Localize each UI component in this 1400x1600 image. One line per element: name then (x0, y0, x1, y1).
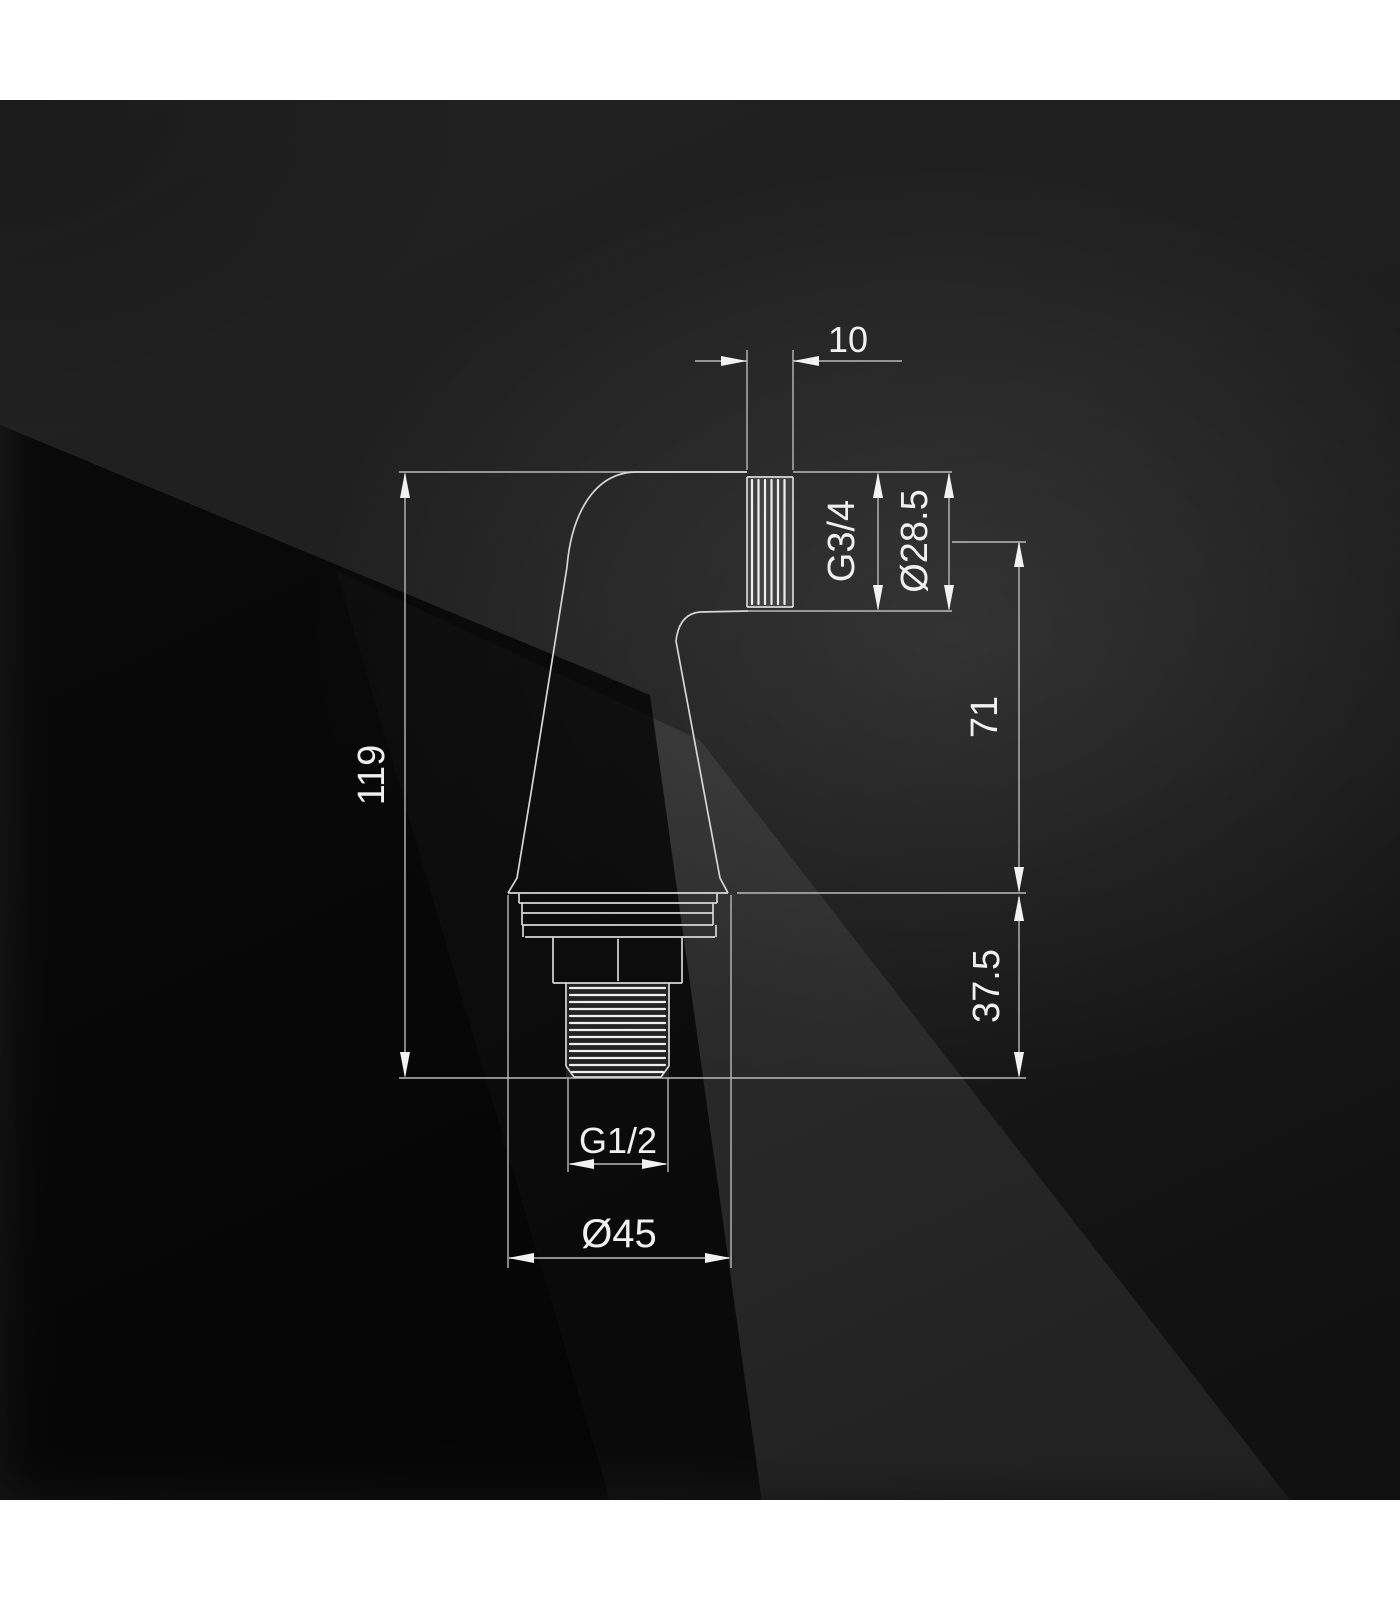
arrow-outlet-dia-top (944, 472, 954, 498)
arrow-outlet-thread-bottom (873, 585, 883, 611)
arrow-base-dia-left (508, 1253, 534, 1263)
hex-nut (553, 937, 682, 983)
arrow-outlet-dia-bottom (944, 585, 954, 611)
collar-ring-1 (519, 893, 717, 903)
collar-skirt (523, 925, 716, 937)
product-dimension-page: 10 G3/4 Ø28.5 71 37.5 119 G1/2 Ø45 (0, 0, 1400, 1600)
outlet-thread (747, 477, 793, 607)
arrow-overall-height-bottom (400, 1052, 410, 1078)
extension-lines (399, 350, 1026, 1268)
arrow-axis-to-base-bottom (1014, 867, 1024, 893)
inlet-thread (566, 983, 669, 1077)
arrow-outlet-length-right (793, 356, 819, 366)
label-inlet-thread-size: G1/2 (579, 1120, 657, 1161)
fixture-body-outline (508, 472, 748, 983)
body-right-profile (676, 611, 748, 893)
label-outlet-diameter: Ø28.5 (894, 489, 936, 593)
arrow-base-to-tip-top (1014, 895, 1024, 921)
arrow-base-to-tip-bottom (1014, 1052, 1024, 1078)
collar-ring-3 (522, 913, 713, 925)
arrow-axis-to-base-top (1014, 541, 1024, 567)
label-outlet-thread-size: G3/4 (821, 500, 863, 582)
label-overall-height: 119 (351, 745, 393, 806)
dimension-labels: 10 G3/4 Ø28.5 71 37.5 119 G1/2 Ø45 (351, 319, 1008, 1256)
base-collar-rings (519, 893, 717, 937)
label-axis-to-base: 71 (964, 696, 1006, 738)
label-base-to-inlet-tip: 37.5 (966, 949, 1008, 1023)
outlet-thread-shading (747, 477, 793, 607)
label-outlet-length: 10 (828, 319, 868, 360)
arrow-overall-height-top (400, 472, 410, 498)
collar-ring-2 (522, 903, 713, 913)
top-white-band (0, 0, 1400, 100)
bottom-white-band (0, 1500, 1400, 1600)
arrow-outlet-thread-top (873, 472, 883, 498)
dark-artwork-canvas: 10 G3/4 Ø28.5 71 37.5 119 G1/2 Ø45 (0, 100, 1400, 1500)
arrow-outlet-length-left (721, 356, 747, 366)
label-base-diameter: Ø45 (581, 1212, 657, 1256)
technical-drawing: 10 G3/4 Ø28.5 71 37.5 119 G1/2 Ø45 (0, 100, 1400, 1500)
arrow-base-dia-right (705, 1253, 731, 1263)
